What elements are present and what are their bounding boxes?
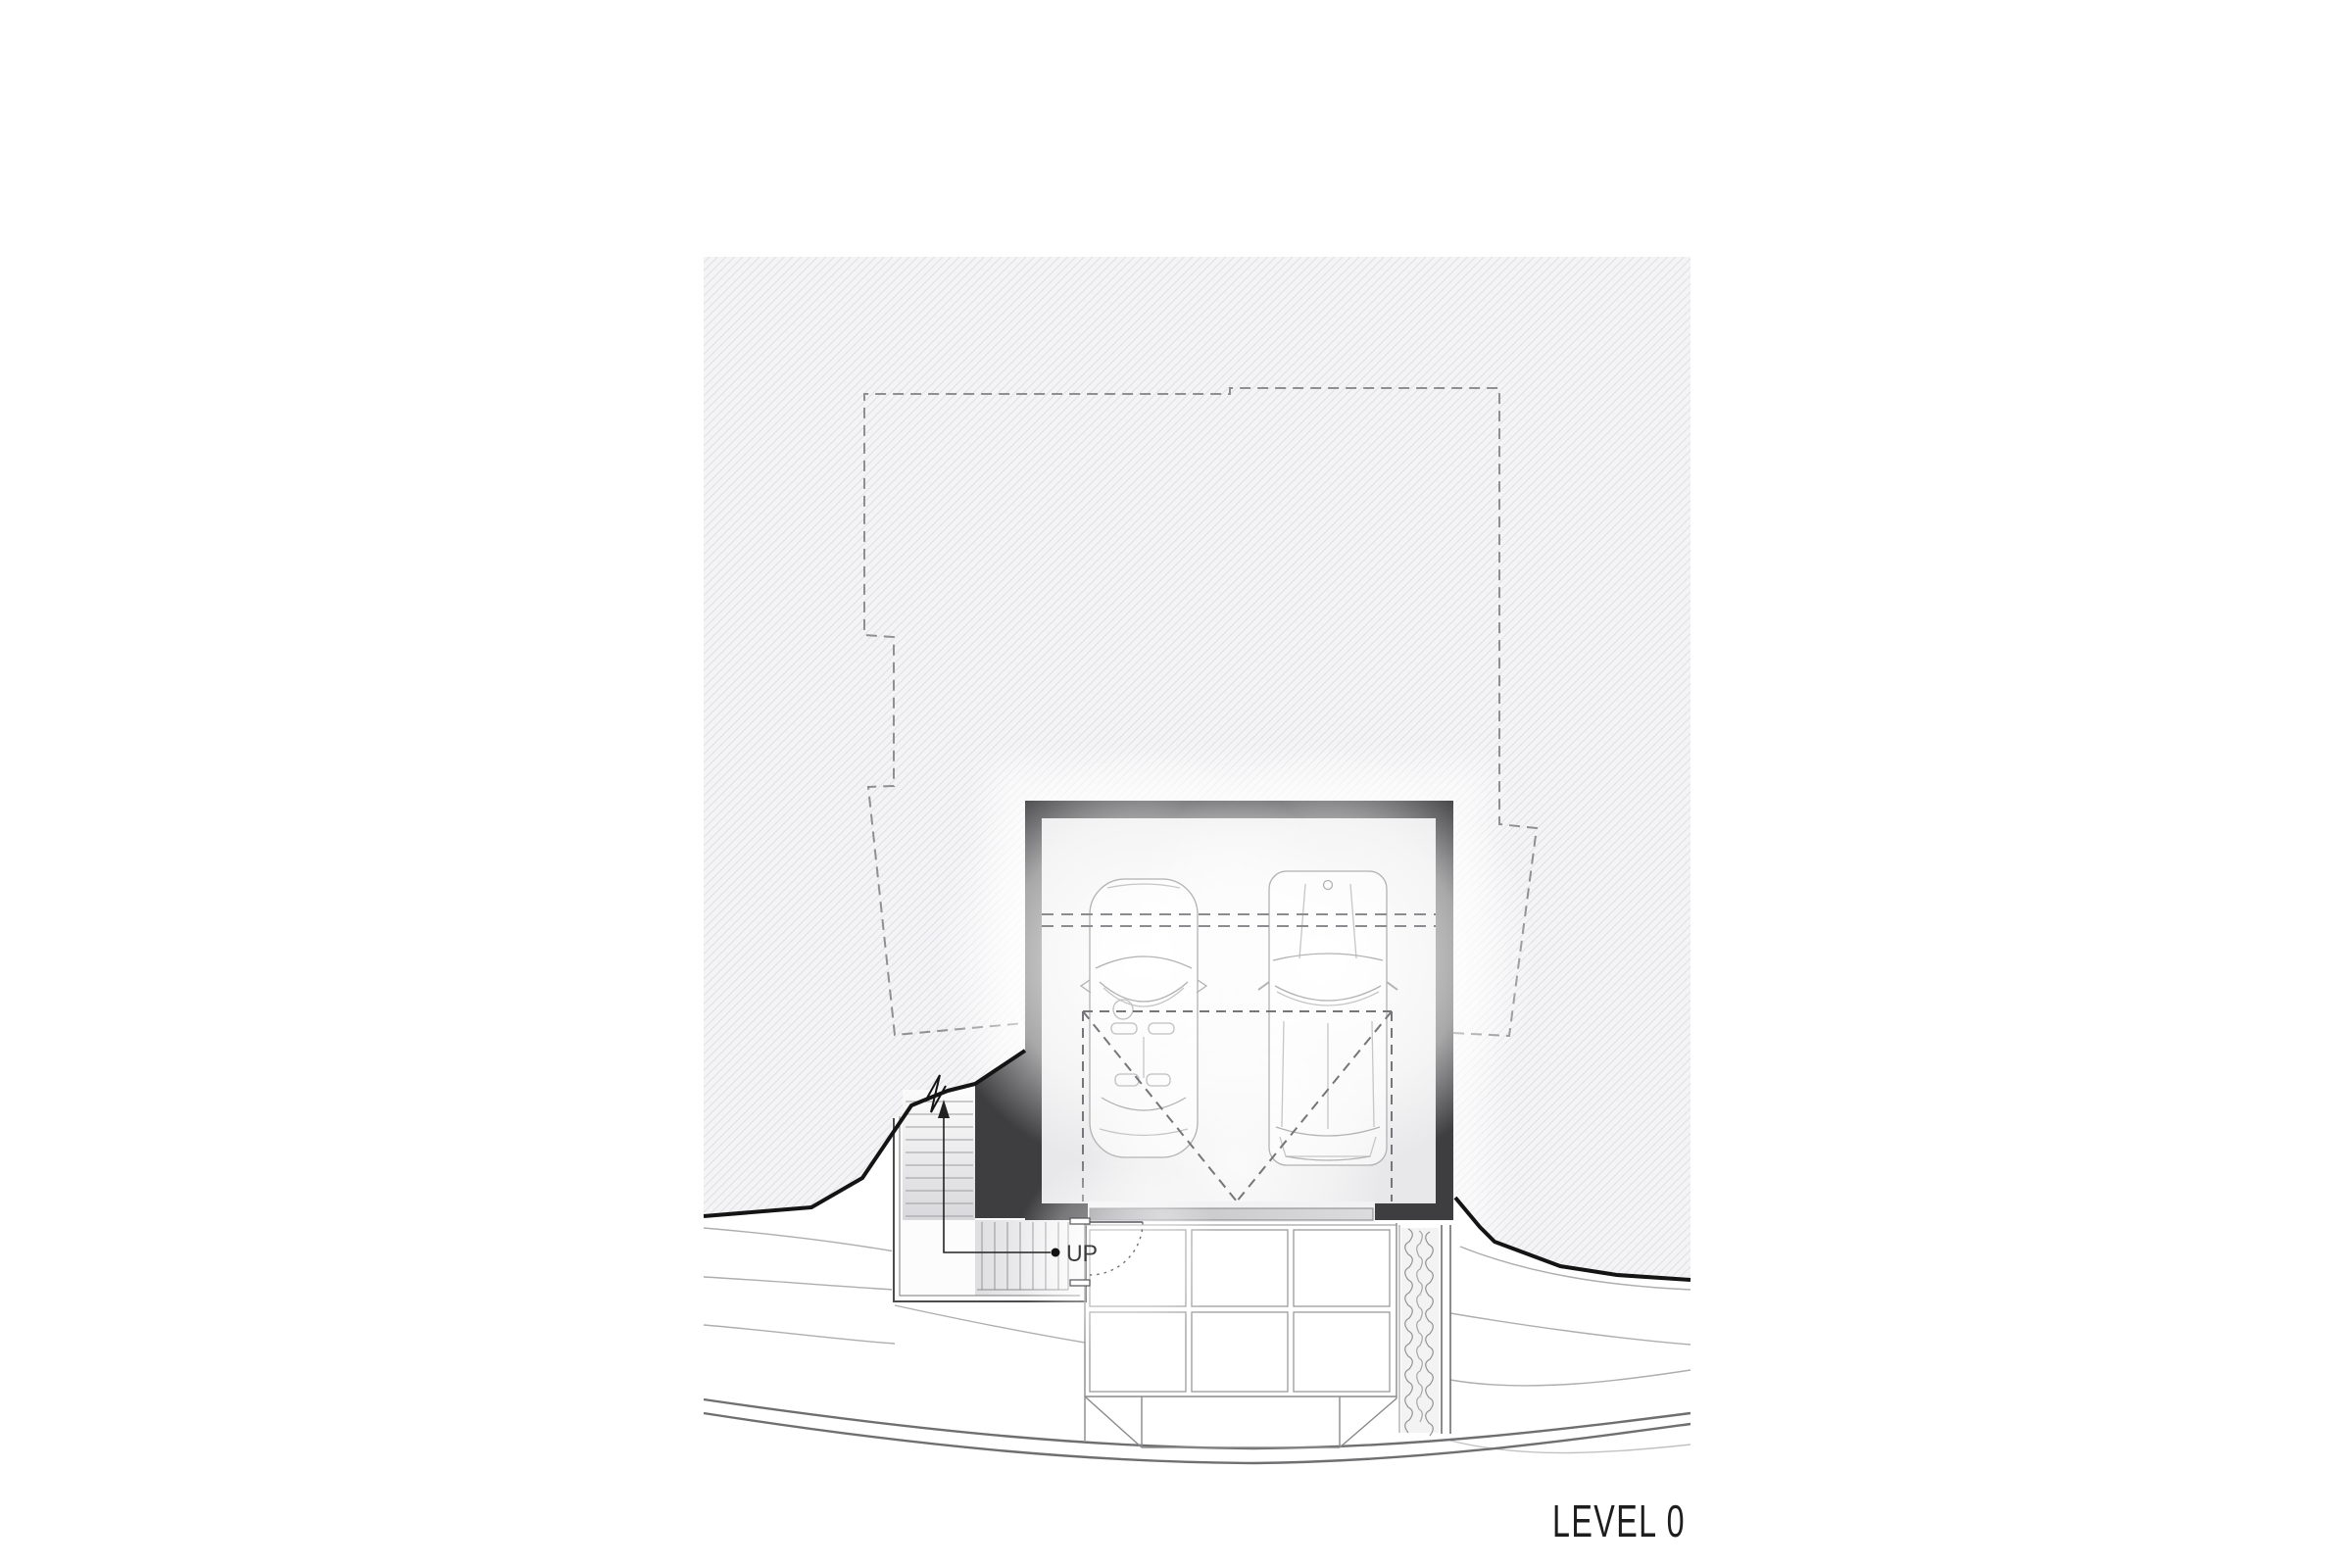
door-jamb — [1070, 1218, 1090, 1224]
entry-glow — [1014, 1151, 1220, 1357]
contour-line — [1450, 1441, 1690, 1453]
contour-line — [704, 1277, 895, 1290]
driveway-apron — [1085, 1396, 1396, 1447]
contour-line — [704, 1228, 895, 1251]
stair-upper-run — [903, 1090, 975, 1220]
up-label: UP — [1066, 1241, 1098, 1267]
direction-start-dot — [1052, 1249, 1060, 1257]
floor-plan-sheet: UP LEVEL 0 — [0, 0, 2352, 1568]
contour-line — [1450, 1370, 1690, 1386]
road-edge-line — [704, 1399, 1690, 1448]
side-path-lines — [1442, 1225, 1450, 1434]
car-sedan — [1081, 879, 1206, 1157]
road-edge-lines — [704, 1399, 1690, 1463]
door-jamb — [1070, 1280, 1090, 1286]
paver — [1192, 1312, 1288, 1392]
paver — [1294, 1312, 1390, 1392]
paver — [1294, 1230, 1390, 1306]
floor-plan-drawing: UP LEVEL 0 — [0, 0, 2352, 1568]
contour-line — [1450, 1313, 1690, 1345]
hedge-strip — [1399, 1225, 1450, 1436]
level-title: LEVEL 0 — [1552, 1495, 1686, 1546]
contour-line — [704, 1325, 895, 1344]
